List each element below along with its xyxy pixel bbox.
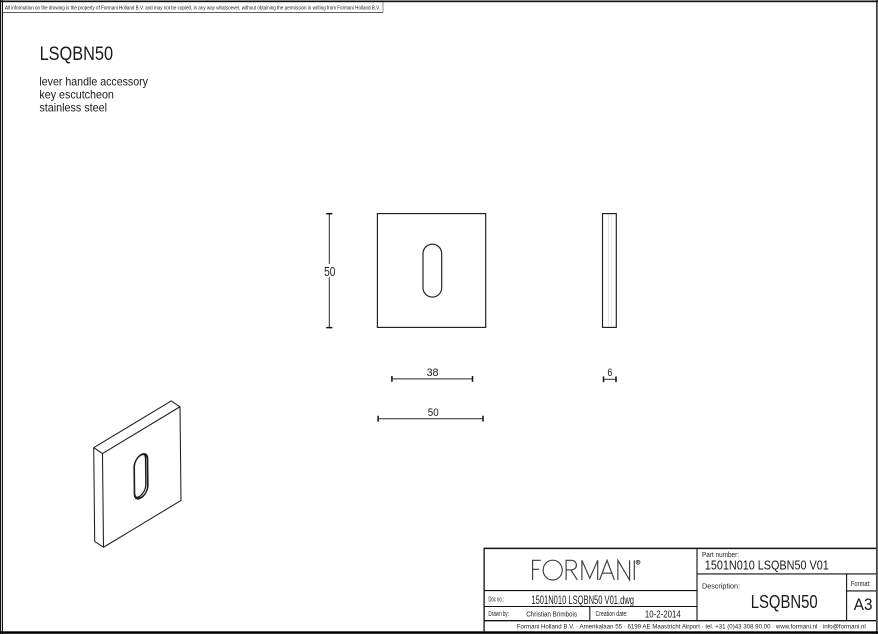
svg-text:50: 50 [324,264,335,279]
svg-text:50: 50 [428,407,439,419]
svg-text:6: 6 [607,367,612,379]
svg-text:Format:: Format: [851,581,871,588]
svg-text:stainless steel: stainless steel [39,101,107,115]
svg-text:Description:: Description: [702,583,740,590]
svg-text:Formani Holland B.V. · Ameri: Formani Holland B.V. · Amerikalaan 55 · … [517,623,866,630]
svg-text:LSQBN50: LSQBN50 [40,44,114,65]
svg-text:All information on the drawing: All information on the drawing is the pr… [5,6,380,12]
svg-text:10-2-2014: 10-2-2014 [645,609,681,620]
svg-text:Creation date:: Creation date: [596,611,628,618]
svg-text:1501N010 LSQBN50 V01: 1501N010 LSQBN50 V01 [705,557,829,572]
svg-text:Christian Brimbois: Christian Brimbois [526,610,577,619]
svg-text:Drawn by:: Drawn by: [488,611,509,618]
svg-text:lever handle accessory: lever handle accessory [39,75,148,89]
svg-text:key escutcheon: key escutcheon [39,88,114,102]
svg-text:Doc no.:: Doc no.: [488,597,504,604]
svg-text:LSQBN50: LSQBN50 [751,592,818,612]
svg-text:1501N010 LSQBN50 V01.dwg: 1501N010 LSQBN50 V01.dwg [531,593,634,607]
svg-text:38: 38 [427,367,439,379]
svg-text:A3: A3 [854,596,873,614]
